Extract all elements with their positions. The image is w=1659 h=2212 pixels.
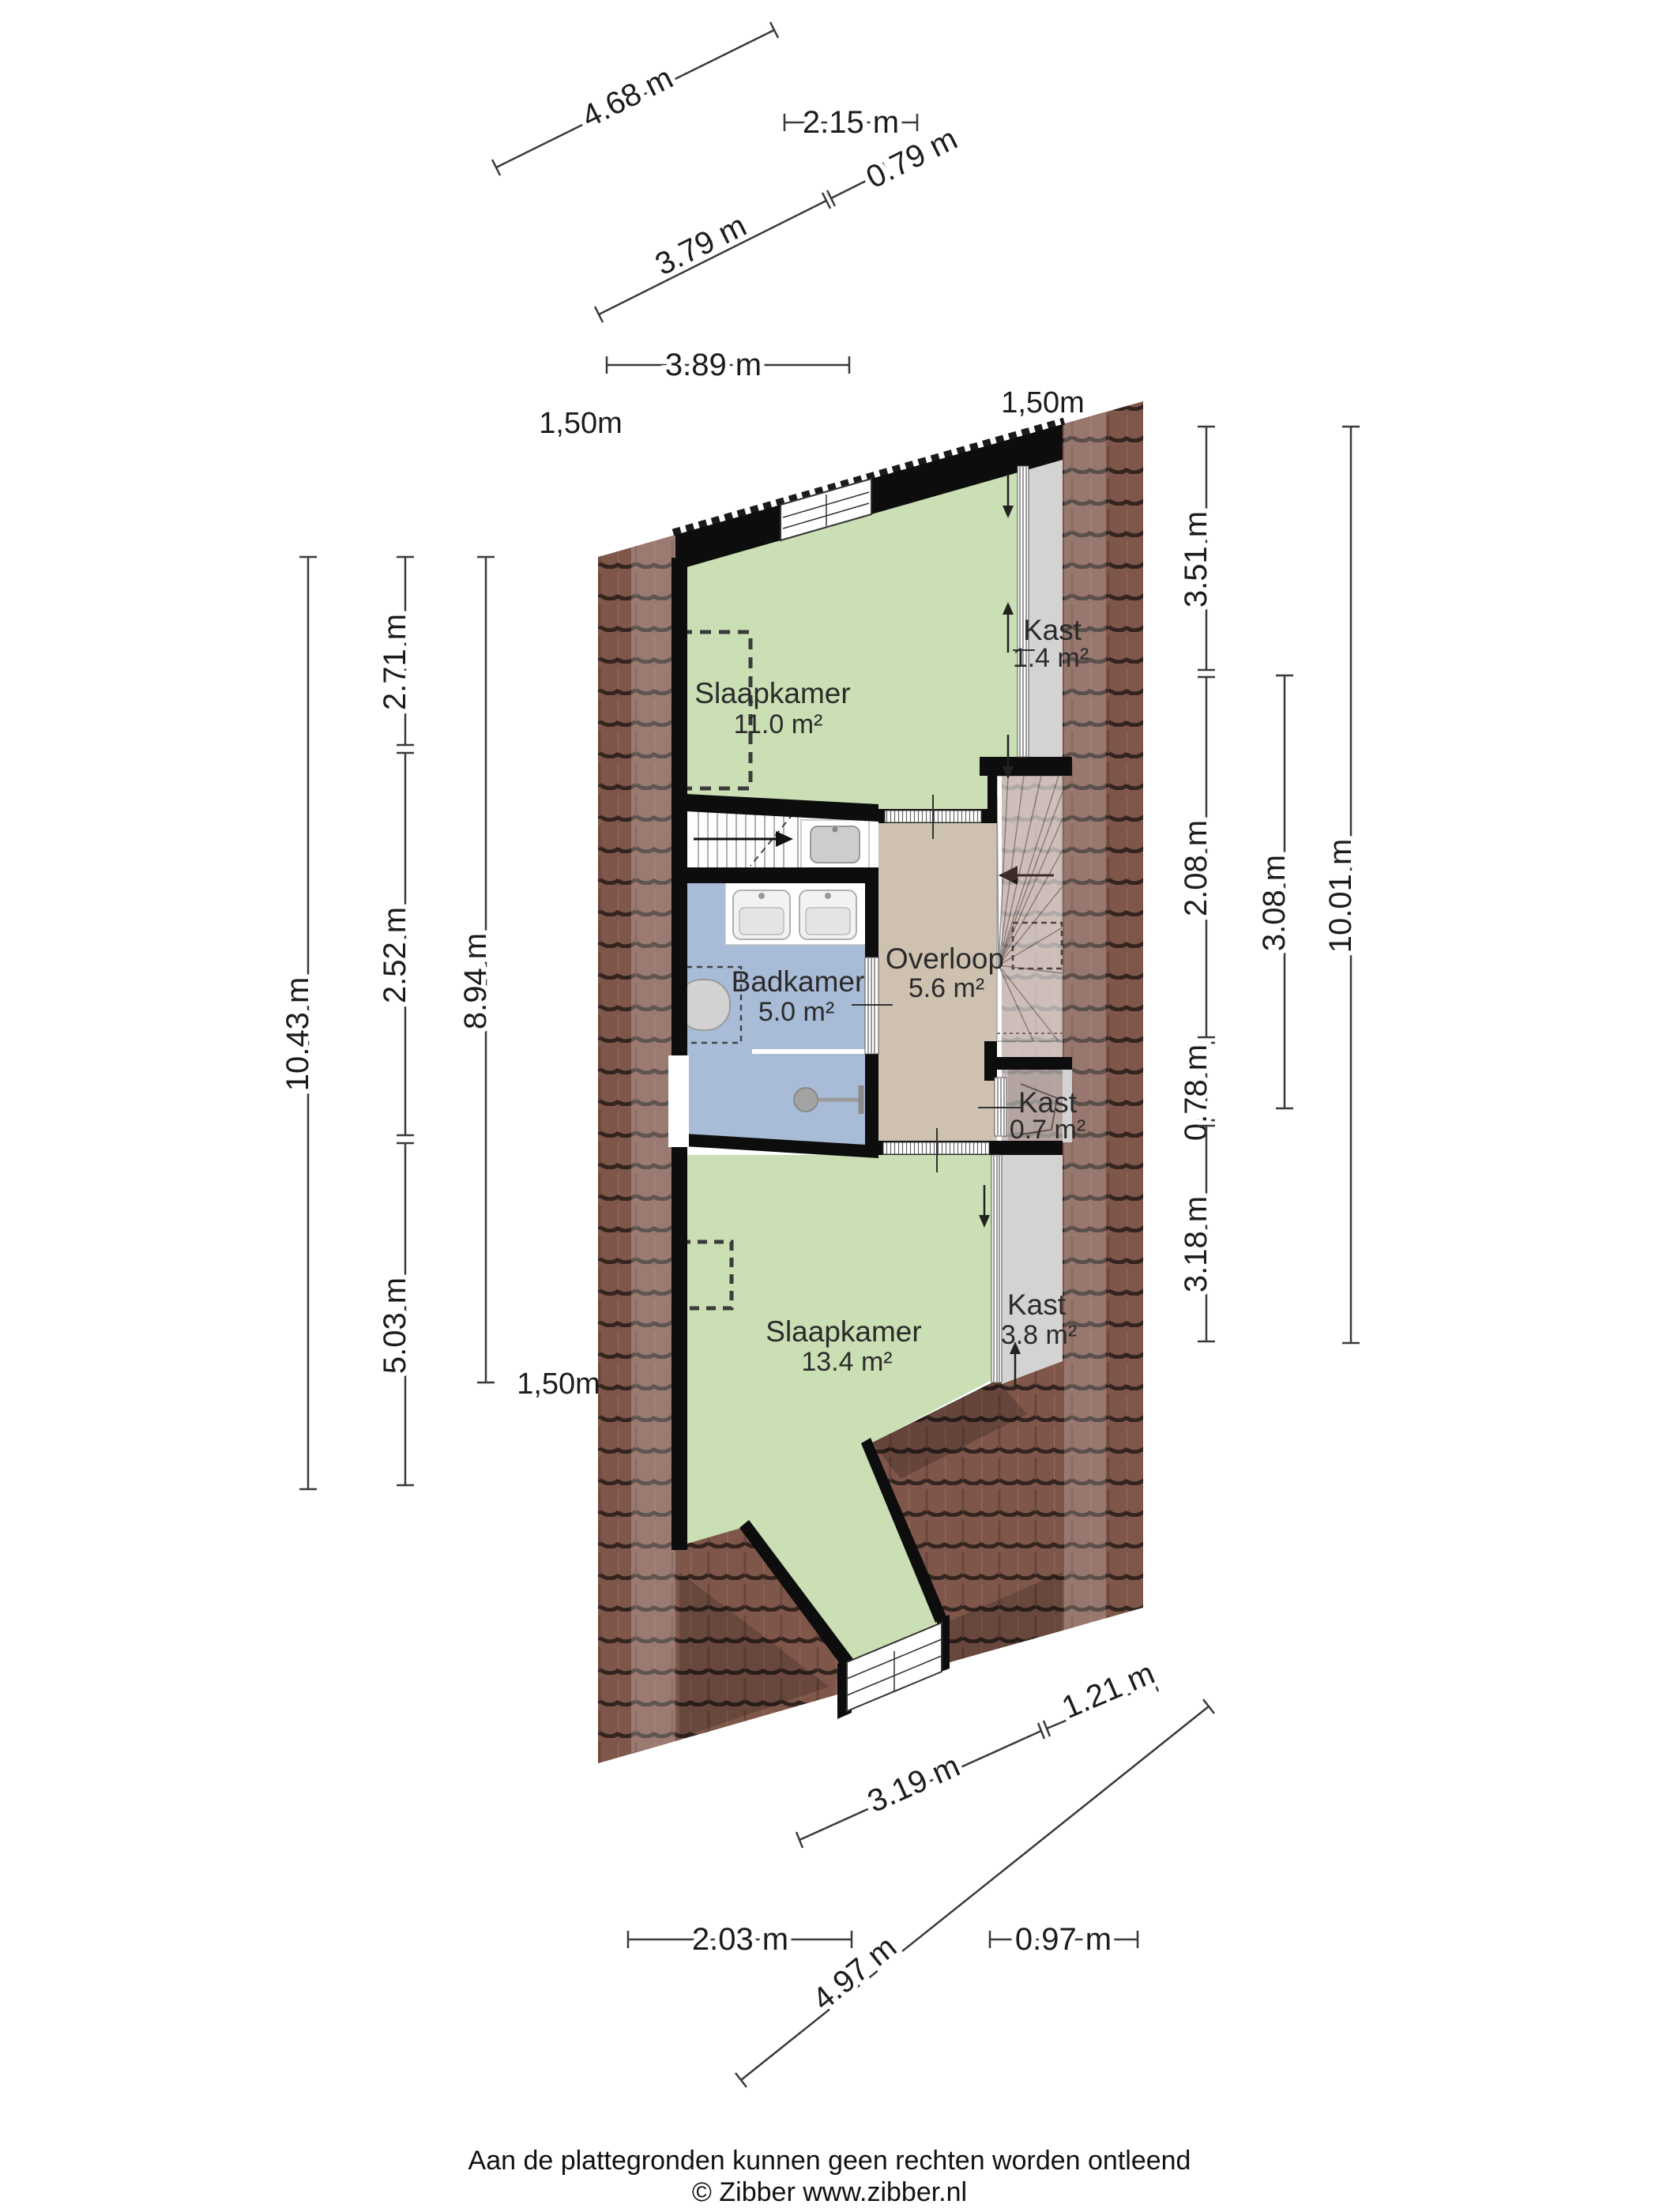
area-overloop: 5.6 m² [908,973,984,1003]
svg-text:8.94 m: 8.94 m [458,933,493,1029]
wall-west [671,558,687,1550]
svg-text:2.08 m: 2.08 m [1179,820,1213,916]
area-slaapkamer-boven: 11.0 m² [734,709,823,739]
label-slaapkamer-onder: Slaapkamer [766,1315,921,1348]
wall-kast-klein-west [984,1041,997,1081]
svg-text:10.43 m: 10.43 m [280,977,315,1092]
svg-text:2.71 m: 2.71 m [378,614,412,710]
label-slaapkamer-boven: Slaapkamer [694,677,850,709]
footer-disclaimer: Aan de plattegronden kunnen geen rechten… [468,2146,1191,2176]
svg-text:3.89 m: 3.89 m [665,348,762,382]
door-kast-boven [1018,466,1029,757]
floor-plan-canvas: Slaapkamer 11.0 m² Kast 1.4 m² Badkamer … [0,0,1659,2212]
headroom-label-left: 1,50m [539,407,623,440]
svg-text:3.18 m: 3.18 m [1179,1196,1213,1292]
area-kast-boven: 1.4 m² [1013,643,1089,673]
label-kast-klein: Kast [1018,1086,1078,1119]
washbasin-icon [801,820,869,869]
headroom-label-bottom: 1,50m [517,1367,600,1401]
dim-top-215: 2.15 m [784,105,917,140]
label-overloop: Overloop [886,942,1004,975]
svg-text:0.97 m: 0.97 m [1015,1922,1112,1957]
wall-kast-klein-north [997,1057,1072,1070]
label-kast-onder: Kast [1007,1288,1066,1321]
svg-text:5.03 m: 5.03 m [378,1277,412,1374]
wall-kast-boven-south [980,757,1072,776]
bathroom-west-opening [668,1055,689,1147]
label-badkamer: Badkamer [732,965,865,998]
svg-text:3.08 m: 3.08 m [1257,855,1292,951]
svg-text:10.01 m: 10.01 m [1323,839,1358,954]
area-kast-onder: 3.8 m² [1001,1320,1077,1350]
wall-stairwell-west [987,776,997,823]
label-kast-boven: Kast [1023,614,1082,646]
area-slaapkamer-onder: 13.4 m² [801,1347,892,1377]
wall-bathroom-north [671,867,878,883]
area-badkamer: 5.0 m² [758,997,834,1027]
double-sink-icon [725,882,867,945]
svg-text:2.03 m: 2.03 m [692,1922,788,1957]
svg-text:2.15 m: 2.15 m [803,105,899,140]
svg-text:2.52 m: 2.52 m [378,907,412,1003]
headroom-label-right: 1,50m [1001,386,1085,419]
svg-text:3.51 m: 3.51 m [1179,511,1213,608]
stairs-straight-icon [686,811,798,869]
area-kast-klein: 0.7 m² [1010,1115,1085,1145]
footer-copyright: © Zibber www.zibber.nl [692,2177,967,2207]
